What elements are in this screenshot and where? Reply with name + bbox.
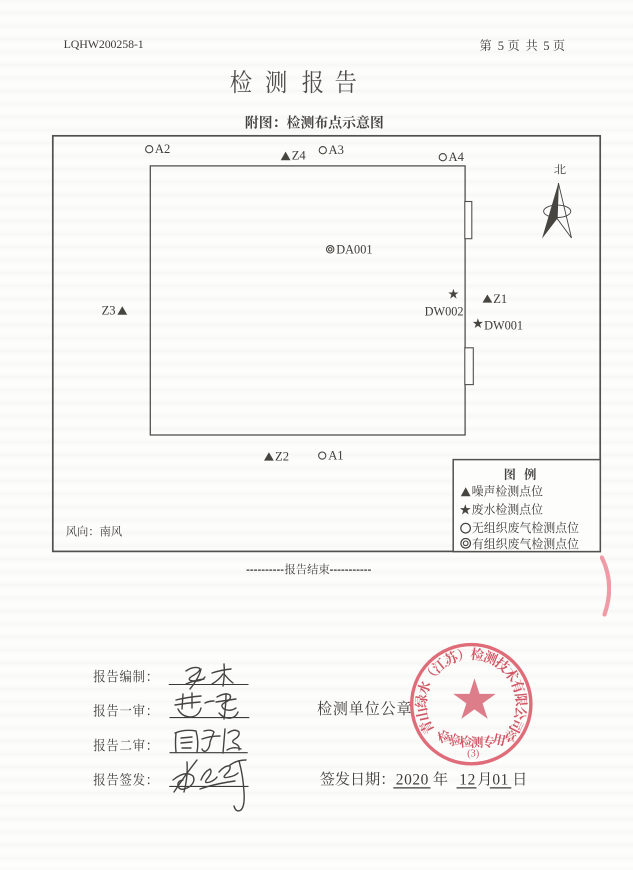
- svg-text:A2: A2: [155, 142, 170, 156]
- svg-text:DW002: DW002: [425, 305, 464, 319]
- svg-text:01: 01: [492, 772, 509, 789]
- svg-text:A3: A3: [329, 143, 344, 157]
- svg-text:2020: 2020: [396, 772, 429, 789]
- svg-text:DW001: DW001: [484, 318, 523, 332]
- svg-text:Z2: Z2: [275, 449, 289, 463]
- svg-text:A1: A1: [328, 448, 343, 462]
- svg-text:5: 5: [498, 39, 504, 53]
- svg-text:12: 12: [459, 772, 476, 789]
- svg-text:Z4: Z4: [292, 149, 307, 163]
- svg-text:5: 5: [543, 39, 549, 53]
- svg-text:A4: A4: [449, 150, 465, 164]
- svg-text:(3): (3): [467, 749, 480, 760]
- svg-text:Z3: Z3: [102, 304, 116, 318]
- svg-text:Z1: Z1: [493, 292, 507, 306]
- svg-text:DA001: DA001: [336, 243, 372, 257]
- svg-text:LQHW200258-1: LQHW200258-1: [64, 37, 144, 51]
